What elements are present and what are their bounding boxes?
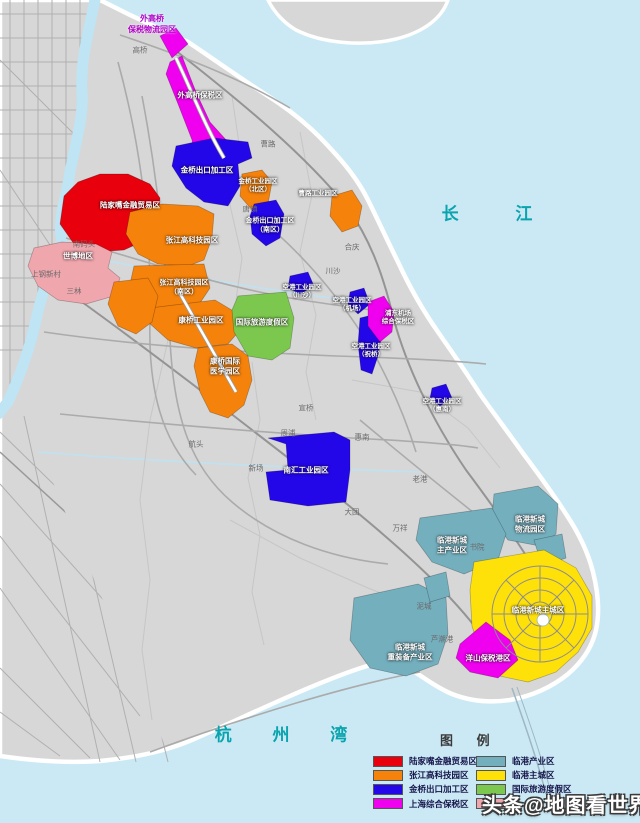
legend-item: 上海综合保税区 bbox=[373, 797, 477, 811]
legend-item: 临港产业区 bbox=[476, 754, 572, 768]
legend-label: 临港产业区 bbox=[512, 755, 555, 767]
legend-swatch bbox=[373, 756, 403, 767]
legend-item: 陆家嘴金融贸易区 bbox=[373, 754, 477, 768]
legend-item: 临港主城区 bbox=[476, 768, 572, 782]
legend-label: 金桥出口加工区 bbox=[409, 783, 469, 795]
map-canvas bbox=[0, 0, 640, 823]
legend-item: 金桥出口加工区 bbox=[373, 782, 477, 796]
legend-label: 张江高科技园区 bbox=[409, 769, 469, 781]
legend-column-left: 陆家嘴金融贸易区张江高科技园区金桥出口加工区上海综合保税区 bbox=[373, 754, 477, 811]
legend-swatch bbox=[476, 770, 506, 781]
legend-label: 临港主城区 bbox=[512, 769, 555, 781]
watermark: 头条@地图看世界 bbox=[482, 789, 640, 818]
dishui-lake bbox=[537, 614, 549, 626]
legend-swatch bbox=[373, 770, 403, 781]
legend-swatch bbox=[476, 756, 506, 767]
legend-item: 张江高科技园区 bbox=[373, 768, 477, 782]
legend-swatch bbox=[373, 784, 403, 795]
legend-title: 图 例 bbox=[440, 730, 500, 749]
legend-swatch bbox=[373, 798, 403, 809]
map-page: 外高桥保税物流园区外高桥保税区陆家嘴金融贸易区金桥出口加工区金桥工业园区（北区）… bbox=[0, 0, 640, 823]
legend-label: 陆家嘴金融贸易区 bbox=[409, 755, 477, 767]
legend-label: 上海综合保税区 bbox=[409, 798, 469, 810]
